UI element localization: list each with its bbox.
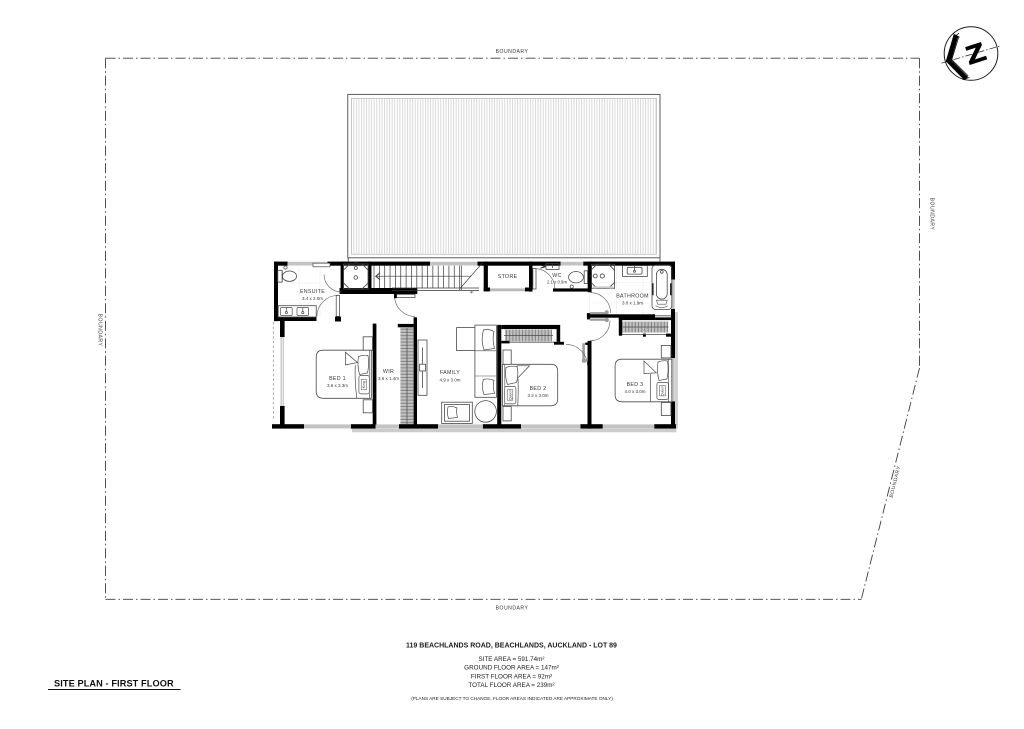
svg-text:BOUNDARY: BOUNDARY: [496, 606, 529, 612]
svg-text:4.9 x 3.0m: 4.9 x 3.0m: [439, 378, 460, 383]
svg-text:WIR: WIR: [383, 369, 394, 375]
svg-text:BOUNDARY: BOUNDARY: [496, 49, 529, 55]
svg-text:(PLANS ARE SUBJECT TO CHANGE,: (PLANS ARE SUBJECT TO CHANGE, FLOOR AREA…: [411, 696, 613, 701]
svg-text:3.6 x 3.3m: 3.6 x 3.3m: [327, 383, 348, 388]
svg-text:STORE: STORE: [498, 274, 518, 280]
svg-text:SITE PLAN - FIRST FLOOR: SITE PLAN - FIRST FLOOR: [54, 679, 174, 689]
svg-text:BED 1: BED 1: [329, 376, 346, 382]
svg-text:BOUNDARY: BOUNDARY: [929, 198, 935, 231]
svg-text:Queen: Queen: [661, 386, 665, 396]
svg-text:BATHROOM: BATHROOM: [616, 293, 649, 299]
svg-text:King: King: [362, 381, 366, 388]
svg-text:BED 2: BED 2: [530, 386, 547, 392]
svg-text:TOTAL FLOOR AREA = 239m²: TOTAL FLOOR AREA = 239m²: [468, 682, 554, 689]
svg-text:WC: WC: [552, 273, 561, 279]
svg-text:3.6 x 1.4m: 3.6 x 1.4m: [378, 376, 399, 381]
svg-text:3.2 x 3.0m: 3.2 x 3.0m: [527, 393, 548, 398]
svg-text:3.0 x 1.9m: 3.0 x 1.9m: [622, 300, 643, 305]
svg-text:4.0 x 3.0m: 4.0 x 3.0m: [624, 389, 645, 394]
svg-text:FAMILY: FAMILY: [440, 370, 460, 376]
svg-text:BED 3: BED 3: [627, 382, 644, 388]
svg-text:Queen: Queen: [508, 390, 512, 400]
svg-text:2.1 x 0.9m: 2.1 x 0.9m: [547, 279, 567, 284]
svg-text:up: up: [470, 290, 474, 294]
svg-text:BOUNDARY: BOUNDARY: [97, 314, 103, 347]
svg-text:FIRST FLOOR AREA = 92m²: FIRST FLOOR AREA = 92m²: [471, 673, 552, 680]
svg-text:ENSUITE: ENSUITE: [300, 289, 325, 295]
svg-text:119 BEACHLANDS ROAD, BEACHLAND: 119 BEACHLANDS ROAD, BEACHLANDS, AUCKLAN…: [406, 643, 617, 650]
svg-text:SITE AREA = 591.74m²: SITE AREA = 591.74m²: [479, 656, 545, 663]
svg-text:GROUND FLOOR AREA = 147m²: GROUND FLOOR AREA = 147m²: [464, 665, 559, 672]
svg-text:3.4 x 2.0m: 3.4 x 2.0m: [302, 296, 323, 301]
